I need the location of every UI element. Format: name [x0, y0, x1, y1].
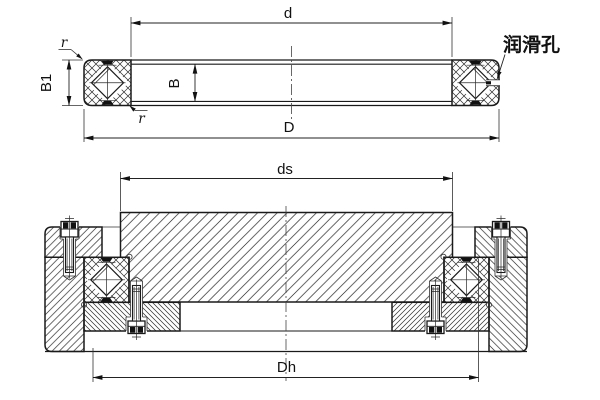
label-lubrication-hole: 润滑孔: [503, 33, 560, 56]
label-d: d: [284, 5, 292, 22]
mounting-view: ds Dh: [45, 161, 527, 382]
mounting-right-bearing: [444, 257, 489, 302]
label-r-top: r: [61, 35, 69, 51]
label-ds: ds: [277, 161, 293, 178]
lubrication-hole-callout: 润滑孔: [498, 33, 561, 78]
left-ring-section: [84, 60, 131, 106]
label-D: D: [284, 119, 295, 136]
label-Dh: Dh: [277, 359, 296, 376]
mounting-left-bearing: [84, 257, 129, 302]
label-r-bottom: r: [138, 111, 146, 127]
top-view-bearing-section: d D B1 B r r 润滑孔: [38, 5, 560, 142]
right-ring-section: [452, 60, 501, 106]
chamfer-callout-bottom: r: [130, 106, 148, 127]
bearing-drawing-canvas: d D B1 B r r 润滑孔: [0, 0, 600, 400]
lubrication-hole: [486, 80, 501, 86]
dimension-ds: ds: [121, 161, 453, 211]
technical-drawing-page: d D B1 B r r 润滑孔: [0, 0, 600, 400]
chamfer-callout-top: r: [59, 35, 83, 59]
label-B1: B1: [38, 74, 55, 92]
upper-seat-plate: [121, 213, 453, 303]
dimension-B: B: [166, 64, 195, 101]
dimension-B1: B1: [38, 60, 83, 106]
label-B: B: [166, 78, 183, 88]
